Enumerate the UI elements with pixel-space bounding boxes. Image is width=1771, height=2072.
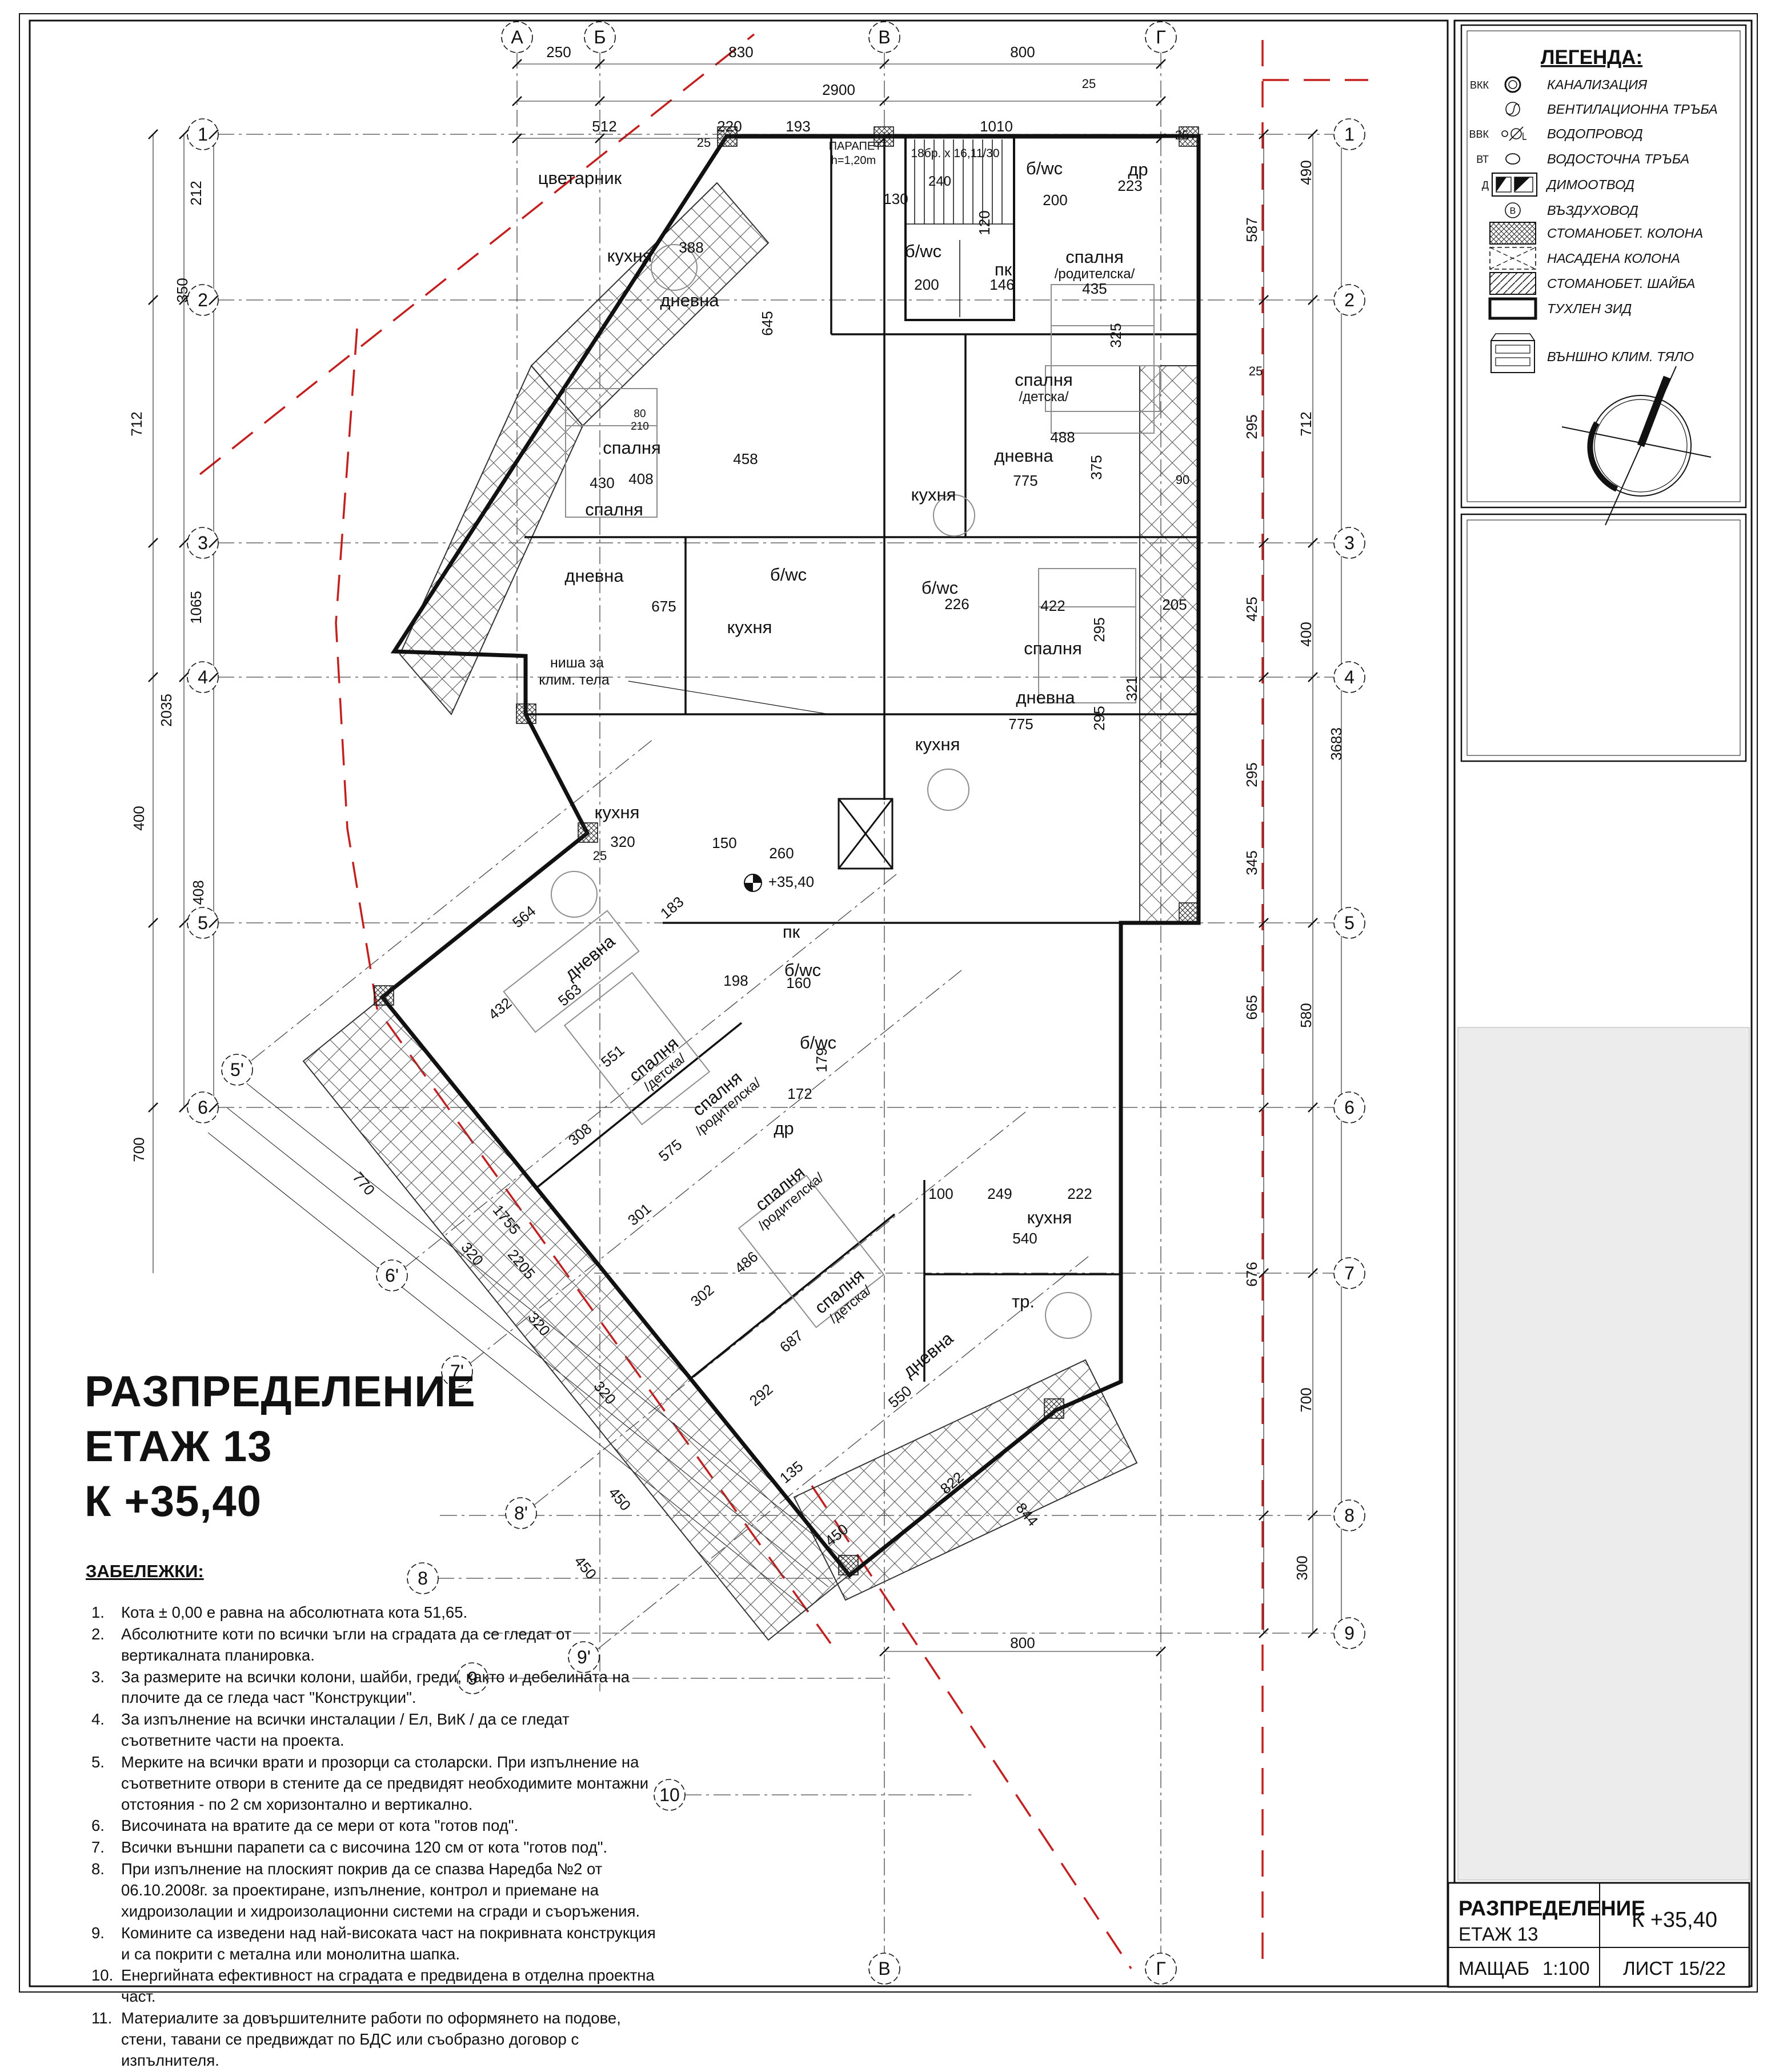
room-label: цветарник [538, 168, 622, 188]
axis-bubble-8': 8' [506, 1498, 536, 1529]
axis-bubble-А: А [502, 22, 532, 53]
axis-bubble-5: 5 [1334, 907, 1365, 938]
dimension-label: 25 [697, 135, 711, 150]
plan-annotation: 18бр. x 16,11/30 [911, 147, 999, 160]
plan-annotation: 240 [928, 174, 951, 189]
svg-text:кухня: кухня [915, 734, 960, 754]
svg-text:кухня: кухня [607, 246, 652, 266]
dimension-label: 540 [1012, 1230, 1037, 1247]
dimension-label: 80 [634, 408, 646, 420]
dimension-label: 193 [786, 118, 810, 135]
dimension-label: 490 [1297, 160, 1315, 185]
legend-item-smoke-duct: ДДИМООТВОД [1482, 173, 1634, 196]
dimension-label: 146 [989, 276, 1014, 293]
air-duct-icon: В [1505, 203, 1520, 218]
planted-column-icon [1490, 247, 1536, 269]
dimension-label: 580 [1297, 1003, 1315, 1027]
svg-text:др: др [1128, 159, 1148, 179]
svg-text:2: 2 [1344, 290, 1355, 310]
svg-text:9: 9 [1344, 1623, 1355, 1643]
dimension-label: 551 [598, 1042, 628, 1071]
drawing-title: РАЗПРЕДЕЛЕНИЕ ЕТАЖ 13 К +35,40 [85, 1365, 476, 1529]
axis-bubble-5': 5' [222, 1054, 253, 1085]
svg-text:б/wc: б/wc [921, 578, 958, 598]
legend-item-canalization: ВКККАНАЛИЗАЦИЯ [1470, 77, 1648, 92]
dimension-label: 320 [610, 833, 635, 850]
dimension-label: 100 [928, 1185, 953, 1202]
dimension-label: 400 [1297, 622, 1315, 646]
svg-text:8: 8 [1344, 1505, 1355, 1526]
scanned-blank-panel [1458, 1027, 1749, 1880]
dimension-label: 25 [1082, 77, 1096, 91]
svg-text:5: 5 [198, 913, 208, 933]
legend-label: ВЪНШНО КЛИМ. ТЯЛО [1547, 349, 1694, 364]
legend-label: ДИМООТВОД [1545, 177, 1634, 192]
dimension-label: 160 [786, 974, 811, 991]
room-label: спалня/детска/ [1015, 370, 1073, 405]
svg-text:2: 2 [198, 290, 208, 310]
room-label: б/wc [1026, 158, 1063, 178]
room-label: дневна [899, 1328, 957, 1382]
axis-bubble-7: 7 [1334, 1258, 1365, 1289]
room-label: кухня [915, 734, 960, 754]
svg-text:6': 6' [385, 1265, 399, 1286]
svg-text:3: 3 [1344, 533, 1355, 553]
axis-bubble-3: 3 [1334, 527, 1365, 558]
svg-text:спалня: спалня [1065, 247, 1124, 267]
svg-text:Г: Г [1156, 27, 1165, 47]
dimension-label: 130 [883, 190, 908, 207]
svg-text:дневна: дневна [899, 1328, 957, 1382]
dimension-label: 205 [1162, 596, 1187, 613]
svg-text:кухня: кухня [727, 617, 772, 637]
svg-text:б/wc: б/wc [905, 241, 941, 261]
dimension-label: 700 [130, 1137, 147, 1162]
svg-text:8': 8' [514, 1503, 528, 1523]
dimension-label: 687 [776, 1327, 807, 1356]
room-label: дневна [994, 446, 1053, 466]
dimension-label: 300 [1293, 1555, 1311, 1580]
svg-text:цветарник: цветарник [538, 168, 622, 188]
room-label: спалня/детска/ [625, 1033, 692, 1097]
axis-bubble-В: В [869, 1953, 900, 1984]
dimension-label: 400 [130, 806, 147, 830]
dimension-label: 1065 [187, 591, 205, 624]
dimension-label: 90 [1176, 473, 1189, 487]
svg-text:спалня: спалня [1024, 638, 1082, 658]
dimension-label: 432 [485, 994, 515, 1023]
dimension-label: 179 [813, 1047, 830, 1072]
dimension-label: 295 [1243, 762, 1260, 787]
dimension-label: 292 [746, 1381, 776, 1410]
axis-bubble-4: 4 [1334, 662, 1365, 693]
right-panel: ЛЕГЕНДА: ВКККАНАЛИЗАЦИЯВЕНТИЛАЦИОННА ТРЪ… [1458, 25, 1749, 1880]
dimension-label: 249 [987, 1185, 1012, 1202]
dimension-label: 488 [1050, 429, 1075, 446]
dimension-label: 222 [1067, 1185, 1092, 1202]
dimension-label: 120 [976, 210, 993, 235]
notes-section: ЗАБЕЛЕЖКИ: Кота ± 0,00 е равна на абсолю… [86, 1561, 663, 2072]
svg-text:тр.: тр. [1012, 1291, 1035, 1311]
legend-title: ЛЕГЕНДА: [1541, 46, 1642, 69]
svg-text:пк: пк [783, 922, 800, 942]
room-label: кухня [911, 485, 956, 505]
legend-label: НАСАДЕНА КОЛОНА [1547, 251, 1680, 266]
dimension-label: 302 [687, 1281, 718, 1310]
svg-text:6: 6 [1344, 1097, 1355, 1118]
svg-text:/родителска/: /родителска/ [1055, 266, 1135, 282]
svg-text:спалня: спалня [603, 438, 661, 458]
svg-text:кухня: кухня [1027, 1207, 1072, 1227]
dimension-label: 198 [723, 972, 748, 989]
svg-text:дневна: дневна [560, 931, 619, 985]
dimension-label: 665 [1243, 995, 1260, 1019]
svg-text:А: А [511, 27, 523, 47]
svg-text:спалня: спалня [585, 499, 643, 519]
room-label: спалня/родителска/ [743, 1155, 827, 1233]
room-label: кухня [727, 617, 772, 637]
dimension-label: 563 [555, 981, 585, 1010]
axis-bubble-6: 6 [1334, 1092, 1365, 1123]
dimension-label: 408 [190, 880, 207, 905]
room-label: кухня [1027, 1207, 1072, 1227]
svg-text:др: др [774, 1118, 794, 1138]
room-label: тр. [1012, 1291, 1035, 1311]
svg-text:В: В [878, 1958, 890, 1979]
svg-text:3: 3 [198, 533, 208, 553]
legend-label: КАНАЛИЗАЦИЯ [1547, 77, 1648, 92]
drawing-title-line2: ЕТАЖ 13 [85, 1419, 476, 1474]
legend-item-rc-column: СТОМАНОБЕТ. КОЛОНА [1490, 222, 1703, 244]
dimension-label: 676 [1243, 1262, 1260, 1286]
dimension-label: 295 [1091, 706, 1108, 730]
note-item-1: Кота ± 0,00 е равна на абсолютната кота … [91, 1602, 663, 1623]
room-label: кухня [607, 246, 652, 266]
dimension-label: 321 [1123, 676, 1140, 701]
svg-text:/детска/: /детска/ [1019, 389, 1069, 405]
dimension-label: 2035 [158, 694, 175, 727]
axis-bubble-2: 2 [1334, 285, 1365, 315]
dimension-label: 587 [1243, 217, 1260, 242]
legend-label: ВЕНТИЛАЦИОННА ТРЪБА [1547, 102, 1718, 117]
legend-item-brick-wall: ТУХЛЕН ЗИД [1490, 299, 1632, 318]
ac-outdoor-unit-icon [1491, 334, 1534, 373]
title-block-scale-label: МАЩАБ [1459, 1958, 1529, 1979]
room-label: б/wc [905, 241, 941, 261]
room-label: др [1128, 159, 1148, 179]
svg-text:4: 4 [1344, 667, 1355, 687]
dimension-label: 775 [1008, 715, 1033, 733]
note-item-4: За изпълнение на всички инсталации / Ел,… [91, 1709, 663, 1751]
room-label: спалня [585, 499, 643, 519]
svg-text:4: 4 [198, 667, 208, 687]
title-block-sheet: ЛИСТ 15/22 [1623, 1958, 1726, 1979]
title-block-scale-value: 1:100 [1542, 1958, 1590, 1979]
vent-pipe-icon [1506, 102, 1520, 116]
dimension-label: 800 [1010, 1634, 1035, 1651]
svg-text:1: 1 [1344, 124, 1355, 145]
dimension-label: 183 [657, 893, 687, 922]
room-label: спалня [1024, 638, 1082, 658]
svg-text:дневна: дневна [564, 566, 624, 586]
svg-text:6: 6 [198, 1097, 208, 1118]
room-label: дневна [660, 290, 719, 310]
room-label: др [774, 1118, 794, 1138]
note-item-3: За размерите на всички колони, шайби, гр… [91, 1667, 663, 1709]
axis-bubble-1: 1 [1334, 119, 1365, 150]
title-block-floor: ЕТАЖ 13 [1459, 1923, 1538, 1945]
dimension-label: 1010 [980, 118, 1013, 135]
svg-text:спалня: спалня [1015, 370, 1073, 390]
note-item-5: Мерките на всички врати и прозорци са ст… [91, 1752, 663, 1815]
room-label: спалня/родителска/ [680, 1060, 764, 1138]
dimension-label: 295 [1243, 414, 1260, 439]
dimension-label: 200 [1043, 191, 1067, 209]
axis-bubble-9: 9 [1334, 1618, 1365, 1649]
dimension-label: 422 [1040, 597, 1065, 614]
north-arrow-icon [1562, 366, 1711, 525]
plan-annotation: клим. тела [539, 672, 610, 688]
dimension-label: 200 [914, 276, 939, 293]
dimension-label: 550 [885, 1382, 915, 1411]
dimension-label: 220 [717, 118, 742, 135]
dimension-label: 223 [1117, 177, 1142, 194]
dimension-label: 800 [1010, 43, 1035, 61]
axis-bubble-В: В [869, 22, 900, 53]
dimension-label: 770 [349, 1169, 378, 1199]
dimension-label: 350 [174, 278, 191, 302]
dimension-label: 3683 [1328, 727, 1345, 761]
note-item-11: Материалите за довършителните работи по … [91, 2008, 663, 2071]
room-label: дневна [560, 931, 619, 985]
dimension-label: 25 [593, 849, 607, 863]
dimension-label: 408 [628, 470, 653, 487]
svg-text:кухня: кухня [911, 485, 956, 505]
dimension-label: 250 [546, 43, 571, 61]
drawing-title-line1: РАЗПРЕДЕЛЕНИЕ [85, 1365, 476, 1419]
legend-label: ТУХЛЕН ЗИД [1547, 301, 1632, 316]
room-label: дневна [564, 566, 624, 586]
svg-text:Г: Г [1156, 1958, 1165, 1979]
dimension-label: 25 [1249, 364, 1263, 378]
dimension-label: 301 [624, 1200, 655, 1229]
svg-text:б/wc: б/wc [770, 565, 807, 585]
legend-item-air-duct: ВВЪЗДУХОВОД [1505, 203, 1638, 218]
note-item-10: Енергийната ефективност на сградата е пр… [91, 1965, 663, 2007]
legend-prefix: Д [1482, 179, 1489, 191]
dimension-label: 375 [1088, 455, 1105, 479]
dimension-label: 712 [128, 411, 145, 436]
legend-prefix: ВВК [1469, 129, 1489, 140]
dimension-label: 135 [776, 1458, 807, 1487]
note-item-2: Абсолютните коти по всички ъгли на сград… [91, 1624, 663, 1666]
note-item-7: Всички външни парапети са с височина 120… [91, 1837, 663, 1858]
dimension-label: 435 [1082, 280, 1107, 297]
room-label: спалня/родителска/ [1055, 247, 1135, 282]
dimension-label: 564 [509, 902, 539, 931]
dimension-label: 2900 [822, 81, 855, 98]
title-block-project: РАЗПРЕДЕЛЕНИЕ [1459, 1897, 1645, 1920]
dimension-label: 450 [605, 1484, 634, 1514]
dimension-label: 645 [759, 311, 776, 335]
dimension-label: 700 [1297, 1387, 1315, 1412]
rain-pipe-icon [1506, 154, 1520, 164]
legend-label: ВОДОСТОЧНА ТРЪБА [1547, 151, 1689, 166]
dimension-label: 210 [631, 421, 649, 433]
dimension-label: 345 [1243, 850, 1260, 875]
dimension-label: 25 [1175, 128, 1189, 142]
legend-item-rain-pipe: ВТВОДОСТОЧНА ТРЪБА [1476, 151, 1689, 166]
smoke-duct-icon [1492, 173, 1537, 196]
legend-label: СТОМАНОБЕТ. КОЛОНА [1547, 226, 1703, 241]
axis-bubble-Г: Г [1145, 1953, 1176, 1984]
legend-item-rc-shear-wall: СТОМАНОБЕТ. ШАЙБА [1490, 273, 1695, 294]
dimension-label: 830 [728, 43, 753, 61]
room-label: б/wc [921, 578, 958, 598]
legend-item-planted-column: НАСАДЕНА КОЛОНА [1490, 247, 1680, 269]
legend-item-water-supply: ВВКВОДОПРОВОД [1469, 126, 1643, 141]
brick-wall-icon [1490, 299, 1536, 318]
rc-column-icon [1490, 222, 1536, 244]
axis-bubble-6': 6' [376, 1260, 407, 1291]
dimension-label: 172 [787, 1085, 812, 1102]
svg-text:дневна: дневна [1016, 687, 1075, 707]
dimension-label: 512 [592, 118, 616, 135]
svg-text:кухня: кухня [595, 802, 640, 822]
plan-annotation: h=1,20m [831, 154, 876, 167]
dimension-label: 712 [1297, 411, 1315, 436]
notes-title: ЗАБЕЛЕЖКИ: [86, 1561, 663, 1582]
legend-label: ВОДОПРОВОД [1547, 126, 1643, 141]
svg-text:Б: Б [594, 27, 606, 47]
dimension-label: 295 [1091, 617, 1108, 642]
dimension-label: 775 [1013, 472, 1037, 489]
legend-item-ac-outdoor-unit: ВЪНШНО КЛИМ. ТЯЛО [1491, 334, 1694, 373]
legend-label: ВЪЗДУХОВОД [1547, 203, 1638, 218]
dimension-label: 425 [1243, 597, 1260, 621]
axis-bubble-Г: Г [1145, 22, 1176, 53]
dimension-label: 260 [769, 845, 794, 862]
dimension-label: 458 [733, 450, 758, 467]
elevation-marker [744, 874, 762, 891]
room-label: спалня [603, 438, 661, 458]
svg-text:дневна: дневна [660, 290, 719, 310]
room-label: кухня [595, 802, 640, 822]
dimension-label: 226 [944, 595, 969, 613]
drawing-title-line3: К +35,40 [85, 1474, 476, 1529]
title-block-elevation: К +35,40 [1632, 1908, 1717, 1932]
svg-text:дневна: дневна [994, 446, 1053, 466]
svg-text:1: 1 [198, 124, 208, 145]
legend-label: СТОМАНОБЕТ. ШАЙБА [1547, 275, 1695, 291]
rc-shear-wall-icon [1490, 273, 1536, 294]
dimension-label: 388 [679, 239, 703, 256]
note-item-9: Комините са изведени над най-високата ча… [91, 1923, 663, 1965]
dimension-label: 675 [651, 598, 676, 615]
room-label: пк [783, 922, 800, 942]
svg-text:5': 5' [230, 1059, 244, 1080]
axis-bubble-Б: Б [584, 22, 615, 53]
legend-prefix: ВТ [1476, 154, 1489, 165]
svg-text:В: В [1510, 206, 1516, 216]
svg-text:5: 5 [1344, 913, 1355, 933]
note-item-8: При изпълнение на плоският покрив да се … [91, 1859, 663, 1922]
svg-text:7: 7 [1344, 1263, 1355, 1283]
dimension-label: 212 [187, 181, 205, 205]
canalization-icon [1505, 77, 1520, 92]
dimension-label: 150 [712, 834, 736, 851]
room-label: б/wc [770, 565, 807, 585]
dimension-label: 325 [1107, 323, 1124, 347]
axis-bubble-8: 8 [1334, 1500, 1365, 1531]
svg-text:В: В [878, 27, 890, 47]
plan-annotation: +35,40 [768, 873, 814, 890]
dimension-label: 430 [590, 474, 614, 491]
svg-text:б/wc: б/wc [1026, 158, 1063, 178]
dimension-label: 575 [655, 1136, 686, 1165]
note-item-6: Височината на вратите да се мери от кота… [91, 1815, 663, 1837]
plan-annotation: ПАРАПЕТ [829, 140, 882, 153]
title-block: РАЗПРЕДЕЛЕНИЕ ЕТАЖ 13 К +35,40 МАЩАБ 1:1… [1448, 1883, 1749, 1987]
legend-item-vent-pipe: ВЕНТИЛАЦИОННА ТРЪБА [1506, 102, 1718, 117]
legend-prefix: ВКК [1470, 79, 1489, 91]
plan-annotation: ниша за [550, 655, 604, 671]
room-label: дневна [1016, 687, 1075, 707]
water-supply-icon [1502, 127, 1526, 141]
